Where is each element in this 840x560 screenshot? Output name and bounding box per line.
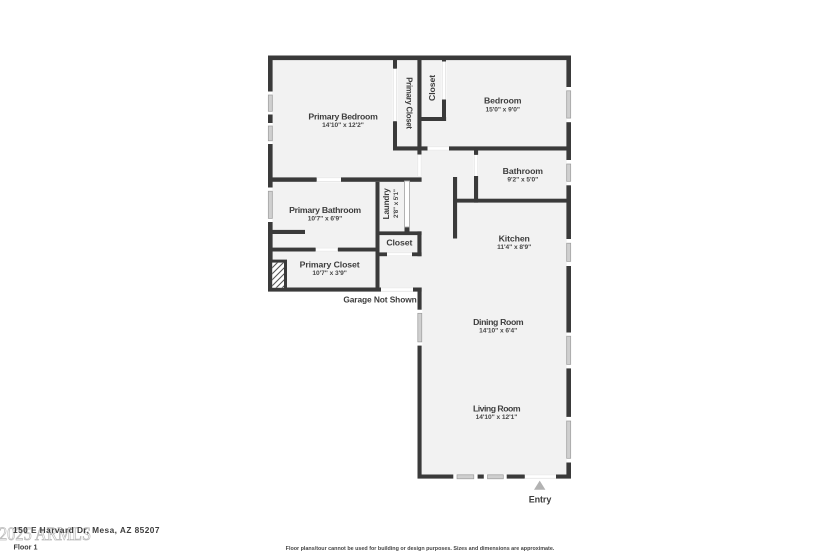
svg-text:Closet: Closet [386,238,412,248]
svg-text:14'10" x 6'4": 14'10" x 6'4" [479,328,517,335]
svg-text:10'7" x 3'9": 10'7" x 3'9" [312,270,346,277]
svg-text:Dining Room: Dining Room [473,317,524,327]
svg-text:Entry: Entry [529,495,552,505]
svg-text:Bathroom: Bathroom [503,166,544,176]
svg-text:Primary Closet: Primary Closet [300,259,360,269]
svg-text:14'10" x 12'2": 14'10" x 12'2" [322,122,364,129]
svg-text:Kitchen: Kitchen [499,233,530,243]
svg-text:Floor plans/tour cannot be use: Floor plans/tour cannot be used for buil… [286,546,555,552]
svg-text:Living Room: Living Room [473,404,521,414]
svg-text:Laundry: Laundry [382,188,391,220]
svg-text:Primary Closet: Primary Closet [405,77,414,129]
svg-text:15'0" x 9'0": 15'0" x 9'0" [485,107,519,114]
svg-text:Closet: Closet [427,75,437,101]
svg-text:Bedroom: Bedroom [484,96,522,106]
svg-text:150 E Harvard Dr, Mesa, AZ 852: 150 E Harvard Dr, Mesa, AZ 85207 [13,525,160,535]
svg-text:10'7" x 6'9": 10'7" x 6'9" [308,216,342,223]
svg-text:Primary Bathroom: Primary Bathroom [289,205,361,215]
svg-text:9'2" x 5'0": 9'2" x 5'0" [507,177,538,184]
svg-text:Primary Bedroom: Primary Bedroom [308,112,378,122]
svg-text:14'10" x 12'1": 14'10" x 12'1" [476,414,518,421]
svg-text:2'8" x 5'1": 2'8" x 5'1" [393,189,400,218]
svg-text:11'4" x 8'9": 11'4" x 8'9" [497,244,531,251]
svg-text:Floor 1: Floor 1 [14,543,38,552]
svg-text:Garage Not Shown: Garage Not Shown [343,295,416,305]
